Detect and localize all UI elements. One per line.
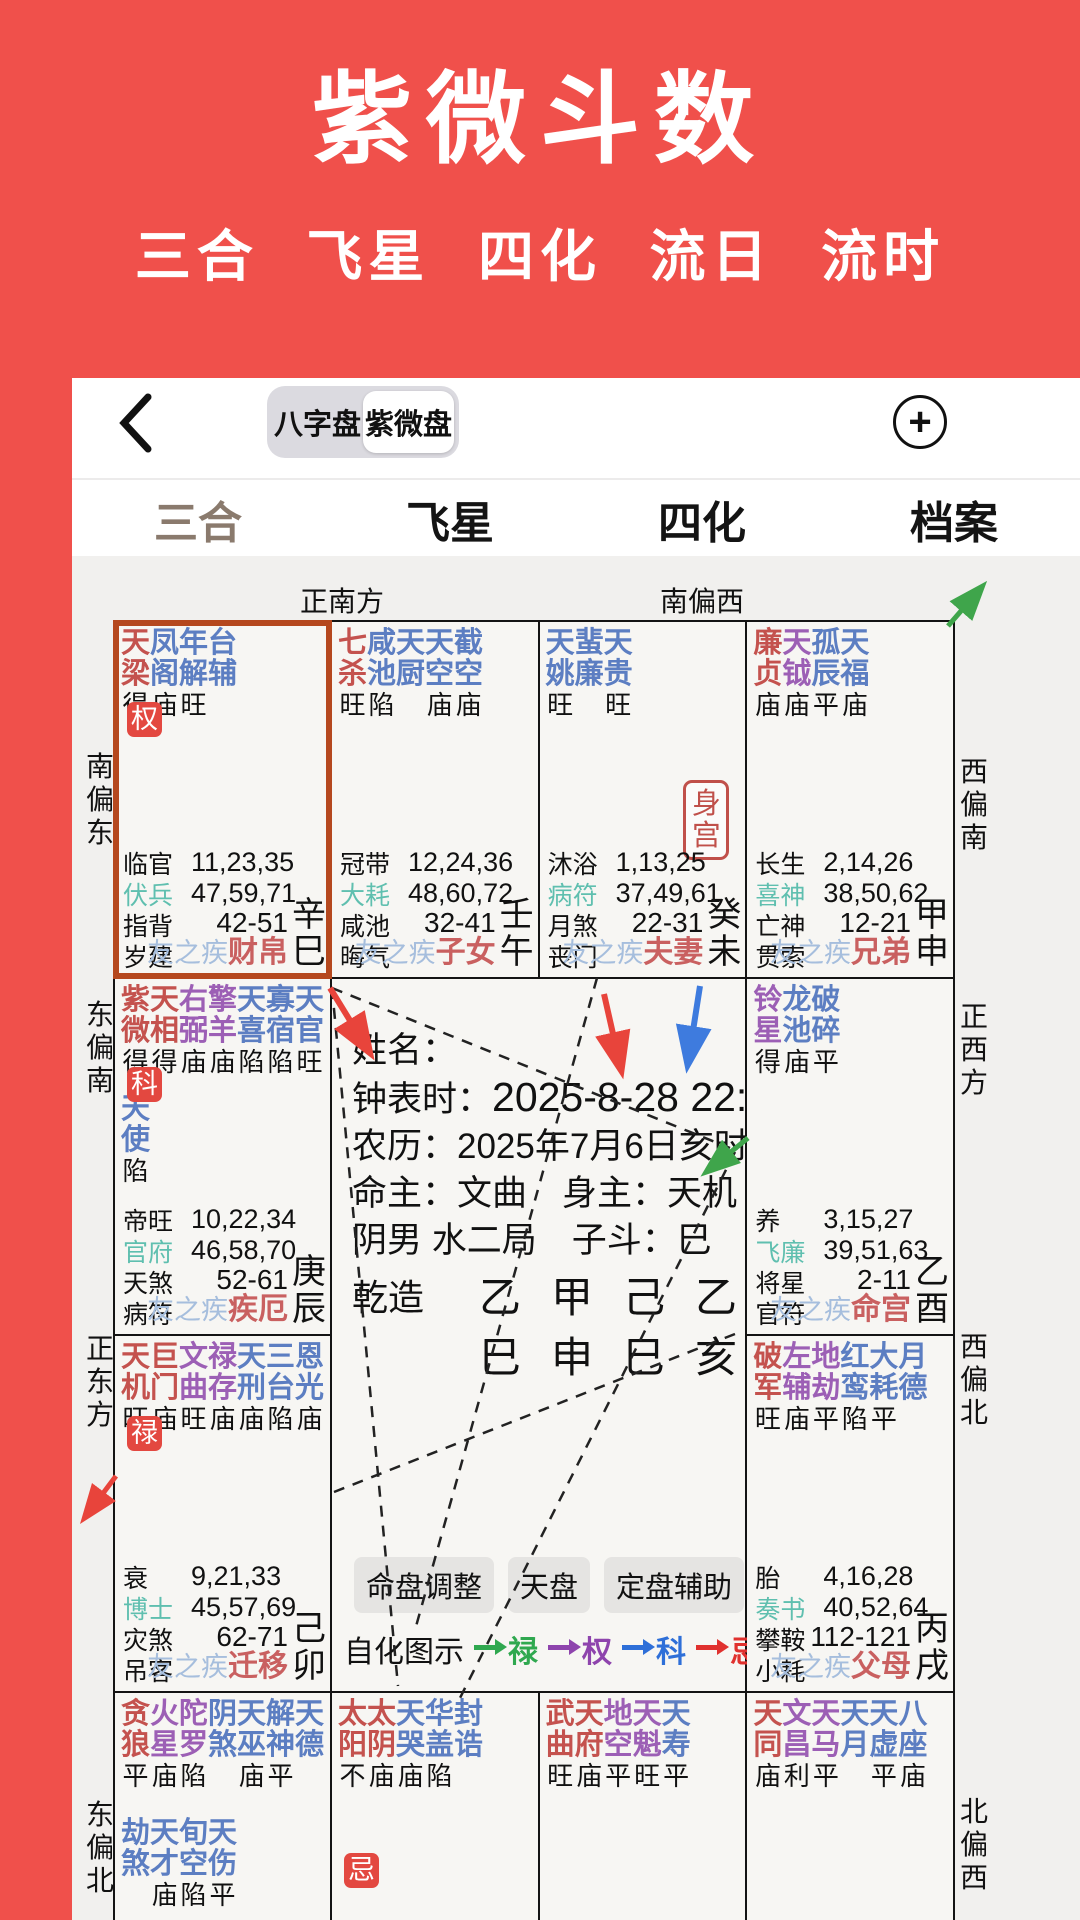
star-char: 华: [425, 1699, 454, 1730]
star-brightness: 庙: [367, 1761, 396, 1791]
star-char: 德: [295, 1730, 324, 1761]
star-char: 天: [604, 628, 633, 659]
legend-arrow-icon: [622, 1645, 644, 1650]
overlay-tag: 友之疾: [147, 938, 228, 968]
star-武曲: 武曲旺: [546, 1699, 575, 1791]
legend-arrow-icon: [474, 1645, 496, 1650]
palace-wu[interactable]: 七杀旺咸池陷天厨天空庙截空庙冠带12,24,36大耗48,60,72咸池晦气32…: [332, 622, 538, 977]
palace-name-tag: 疾厄: [228, 1293, 288, 1326]
star-char: 孤: [811, 628, 840, 659]
star-天德: 天德: [295, 1699, 324, 1791]
star-char: 才: [150, 1849, 179, 1880]
star-char: 解: [179, 659, 208, 690]
star-char: 贵: [604, 659, 633, 690]
palace-xu[interactable]: 破军旺左辅庙地劫平红鸾陷大耗平月德胎4,16,28奏书40,52,64攀鞍小耗1…: [747, 1336, 953, 1691]
star-char: 星: [753, 1016, 782, 1047]
transform-badge-忌: 忌: [344, 1853, 379, 1888]
star-brightness: 陷: [179, 1880, 208, 1910]
palace-info: 衰9,21,33博士45,57,69灾煞吊客62-71友之疾迁移: [123, 1561, 288, 1685]
center-info-panel: 姓名： 钟表时：2025-8-28 22:53 农历：2025年7月6日亥时 命…: [332, 979, 745, 1691]
star-char: 天: [546, 628, 575, 659]
limit-numbers: 45,57,69: [179, 1592, 296, 1623]
transform-badge-禄: 禄: [127, 1416, 162, 1451]
star-char: 寿: [662, 1730, 691, 1761]
star-char: 天: [575, 1699, 604, 1730]
stem-branch: 壬午: [499, 897, 535, 971]
bazi-branches-row: 巳申巳亥: [352, 1332, 793, 1384]
star-char: 诰: [454, 1730, 483, 1761]
star-火星: 火星庙: [150, 1699, 179, 1791]
page-title: 紫微斗数: [0, 38, 1080, 183]
palace-grid: 姓名： 钟表时：2025-8-28 22:53 农历：2025年7月6日亥时 命…: [113, 620, 955, 1920]
palace-info: 冠带12,24,36大耗48,60,72咸池晦气32-41友之疾子女: [340, 847, 496, 971]
star-char: 阁: [150, 659, 179, 690]
direction-label-right-4: 北偏西: [958, 1795, 990, 1894]
star-文曲: 文曲旺: [179, 1342, 208, 1434]
palace-stars: 武曲旺天府庙地空平天魁旺天寿平: [546, 1699, 740, 1791]
star-年解: 年解旺: [179, 628, 208, 720]
stem-branch: 乙酉: [914, 1254, 950, 1328]
star-char: 池: [782, 1016, 811, 1047]
star-char: 贞: [753, 659, 782, 690]
stem-branch: 庚辰: [291, 1254, 327, 1328]
star-char: 八: [898, 1699, 927, 1730]
plus-icon: +: [908, 402, 931, 442]
overlay-tag: 友之疾: [562, 938, 643, 968]
star-天伤: 天伤平: [208, 1818, 237, 1910]
star-char: 廉: [575, 659, 604, 690]
star-char: 旬: [179, 1818, 208, 1849]
star-brightness: 旺: [546, 1761, 575, 1791]
palace-tags: 友之疾夫妻: [562, 927, 703, 971]
star-char: 空: [179, 1849, 208, 1880]
palace-stars: 太阳不太阴庙天哭庙华盖陷封诰: [338, 1699, 532, 1791]
star-brightness: 陷: [840, 1404, 869, 1434]
limit-numbers: 47,59,71: [179, 878, 296, 909]
palace-you[interactable]: 铃星得龙池庙破碎平养3,15,27飞廉39,51,63将星官符2-11友之疾命宫…: [747, 979, 953, 1334]
palace-chen[interactable]: 紫微得天相得右弼庙擎羊庙天喜陷寡宿陷天官旺天使陷科帝旺10,22,34官府46,…: [115, 979, 330, 1334]
star-地空: 地空平: [604, 1699, 633, 1791]
star-char: 杀: [338, 659, 367, 690]
palace-name-tag: 子女: [436, 936, 496, 969]
star-char: 地: [811, 1342, 840, 1373]
star-天钺: 天钺庙: [782, 628, 811, 720]
app-page: 紫微斗数 三合 飞星 四化 流日 流时 八字盘 紫微盘 + 三合 飞星 四化 档…: [0, 0, 1080, 1920]
star-char: 伤: [208, 1849, 237, 1880]
star-brightness: 旺: [179, 690, 208, 720]
palace-si[interactable]: 天梁得凤阁庙年解旺台辅权临官11,23,35伏兵47,59,71指背岁建42-5…: [115, 622, 330, 977]
star-brightness: 旺: [546, 690, 575, 720]
star-brightness: 庙: [782, 1047, 811, 1077]
star-char: 凤: [150, 628, 179, 659]
star-char: 寡: [266, 985, 295, 1016]
palace-hai[interactable]: 天同庙文昌利天马平天月天虚平八座庙: [747, 1693, 953, 1920]
star-char: 天: [121, 1342, 150, 1373]
masters-row: 命主：文曲 身主：天机: [352, 1170, 793, 1217]
star-太阴: 太阴庙: [367, 1699, 396, 1791]
star-地劫: 地劫平: [811, 1342, 840, 1434]
star-char: 天: [150, 1818, 179, 1849]
palace-shen[interactable]: 廉贞庙天钺庙孤辰平天福庙长生2,14,26喜神38,50,62亡神贯索12-21…: [747, 622, 953, 977]
star-char: 天: [782, 628, 811, 659]
clock-time-row: 钟表时：2025-8-28 22:53: [352, 1074, 793, 1123]
star-brightness: 庙: [295, 1404, 324, 1434]
star-char: 星: [150, 1730, 179, 1761]
star-贪狼: 贪狼平: [121, 1699, 150, 1791]
star-char: 虚: [869, 1730, 898, 1761]
star-天相: 天相得: [150, 985, 179, 1077]
star-char: 刑: [237, 1373, 266, 1404]
star-char: 狼: [121, 1730, 150, 1761]
star-brightness: 陷: [121, 1156, 150, 1186]
direction-label-southwest: 南偏西: [660, 580, 744, 620]
limit-numbers: 2,14,26: [811, 847, 928, 878]
chevron-left-icon: [116, 441, 156, 458]
star-char: 同: [753, 1730, 782, 1761]
star-char: 空: [425, 659, 454, 690]
overlay-tag: 友之疾: [147, 1295, 228, 1325]
limit-numbers: 9,21,33: [179, 1561, 296, 1592]
limit-numbers: 46,58,70: [179, 1235, 296, 1266]
star-brightness: 庙: [208, 1047, 237, 1077]
star-brightness: 庙: [753, 1761, 782, 1791]
star-brightness: 陷: [367, 690, 396, 720]
palace-yin[interactable]: 贪狼平火星庙陀罗陷阴煞天巫庙解神平天德劫煞天才庙旬空陷天伤平: [115, 1693, 330, 1920]
star-char: 破: [811, 985, 840, 1016]
tab-sihua[interactable]: 四化: [576, 487, 828, 551]
star-char: 天: [295, 1699, 324, 1730]
star-天巫: 天巫庙: [237, 1699, 266, 1791]
star-char: 天: [869, 1699, 898, 1730]
star-char: 天: [150, 985, 179, 1016]
star-char: 梁: [121, 659, 150, 690]
star-char: 座: [898, 1730, 927, 1761]
palace-info: 胎4,16,28奏书40,52,64攀鞍小耗112-121友之疾父母: [755, 1561, 911, 1685]
star-brightness: 平: [869, 1761, 898, 1791]
star-char: 辰: [811, 659, 840, 690]
tab-feixing[interactable]: 飞星: [324, 487, 576, 551]
star-char: 三: [266, 1342, 295, 1373]
star-brightness: 平: [811, 690, 840, 720]
star-char: 罗: [179, 1730, 208, 1761]
palace-tags: 友之疾疾厄: [147, 1284, 288, 1328]
star-char: 使: [121, 1125, 150, 1156]
star-天虚: 天虚平: [869, 1699, 898, 1791]
star-天同: 天同庙: [753, 1699, 782, 1791]
star-char: 廉: [753, 628, 782, 659]
star-char: 禄: [208, 1342, 237, 1373]
limit-numbers: 38,50,62: [811, 878, 928, 909]
star-char: 龙: [782, 985, 811, 1016]
stem-branch: 甲申: [914, 897, 950, 971]
limit-numbers: 11,23,35: [179, 847, 296, 878]
star-brightness: 庙: [150, 1880, 179, 1910]
star-华盖: 华盖陷: [425, 1699, 454, 1791]
star-char: 武: [546, 1699, 575, 1730]
overlay-tag: 友之疾: [147, 1652, 228, 1682]
star-brightness: 旺: [633, 1761, 662, 1791]
star-char: 七: [338, 628, 367, 659]
app-screen: 八字盘 紫微盘 + 三合 飞星 四化 档案 正南方 南偏西 南偏东 东偏南 正东…: [72, 378, 1080, 1920]
star-char: 右: [179, 985, 208, 1016]
palace-stars: 铃星得龙池庙破碎平: [753, 985, 947, 1077]
star-char: 天: [237, 1699, 266, 1730]
star-阴煞: 阴煞: [208, 1699, 237, 1791]
star-廉贞: 廉贞庙: [753, 628, 782, 720]
star-char: 煞: [121, 1849, 150, 1880]
star-brightness: 陷: [425, 1761, 454, 1791]
star-char: 年: [179, 628, 208, 659]
star-brightness: 庙: [425, 690, 454, 720]
star-char: 台: [266, 1373, 295, 1404]
palace-tags: 友之疾财帛: [147, 927, 288, 971]
palace-wei[interactable]: 天姚旺蜚廉天贵旺身宫沐浴1,13,25病符37,49,61月煞丧门22-31友之…: [540, 622, 746, 977]
star-天使: 天使陷: [121, 1094, 150, 1186]
palace-name-tag: 夫妻: [643, 936, 703, 969]
direction-label-left-1: 南偏东: [84, 750, 116, 849]
direction-label-south: 正南方: [300, 580, 384, 620]
star-brightness: 旺: [338, 690, 367, 720]
palace-name-tag: 财帛: [228, 936, 288, 969]
star-brightness: 庙: [179, 1047, 208, 1077]
star-brightness: 陷: [237, 1047, 266, 1077]
star-char: 鸾: [840, 1373, 869, 1404]
star-char: 相: [150, 1016, 179, 1047]
overlay-tag: 友之疾: [770, 938, 851, 968]
direction-label-left-3: 正东方: [84, 1332, 116, 1431]
star-天马: 天马平: [811, 1699, 840, 1791]
stem-branch: 辛巳: [291, 897, 327, 971]
natal-info: 姓名： 钟表时：2025-8-28 22:53 农历：2025年7月6日亥时 命…: [352, 1027, 793, 1384]
star-char: 蜚: [575, 628, 604, 659]
palace-chou[interactable]: 太阳不太阴庙天哭庙华盖陷封诰忌: [332, 1693, 538, 1920]
legend-item-禄: 禄: [508, 1627, 538, 1671]
star-char: 天: [662, 1699, 691, 1730]
lunar-date-row: 农历：2025年7月6日亥时: [352, 1123, 793, 1170]
star-紫微: 紫微得: [121, 985, 150, 1077]
direction-label-right-2: 正西方: [958, 1000, 990, 1099]
direction-label-right-1: 西偏南: [958, 755, 990, 854]
back-button[interactable]: [116, 392, 156, 454]
star-char: 碎: [811, 1016, 840, 1047]
palace-stars: 破军旺左辅庙地劫平红鸾陷大耗平月德: [753, 1342, 947, 1434]
star-太阳: 太阳不: [338, 1699, 367, 1791]
limit-numbers: 1,13,25: [604, 847, 721, 878]
star-char: 辅: [208, 659, 237, 690]
star-char: 马: [811, 1730, 840, 1761]
star-brightness: 庙: [237, 1404, 266, 1434]
star-char: 羊: [208, 1016, 237, 1047]
navbar: 八字盘 紫微盘 +: [72, 378, 1080, 478]
overlay-tag: 友之疾: [355, 938, 436, 968]
transform-badge-科: 科: [127, 1067, 162, 1102]
star-char: 厨: [396, 659, 425, 690]
star-char: 喜: [237, 1016, 266, 1047]
self-transform-legend: 自化图示 禄权科忌: [344, 1627, 760, 1671]
stem-branch: 己卯: [291, 1611, 327, 1685]
limit-numbers: 37,49,61: [604, 878, 721, 909]
star-char: 辅: [782, 1373, 811, 1404]
star-char: 文: [179, 1342, 208, 1373]
bazi-stems-row: 乾造 乙甲己乙: [352, 1272, 793, 1324]
star-三台: 三台陷: [266, 1342, 295, 1434]
chart-action-buttons: 命盘调整 天盘 定盘辅助: [354, 1557, 744, 1613]
segment-ziwei[interactable]: 紫微盘: [363, 391, 454, 453]
star-char: 光: [295, 1373, 324, 1404]
star-char: 贪: [121, 1699, 150, 1730]
palace-zi[interactable]: 武曲旺天府庙地空平天魁旺天寿平: [540, 1693, 746, 1920]
star-char: 姚: [546, 659, 575, 690]
star-brightness: 庙: [150, 1761, 179, 1791]
palace-tags: 友之疾子女: [355, 927, 496, 971]
star-char: 曲: [546, 1730, 575, 1761]
limit-numbers: 10,22,34: [179, 1204, 296, 1235]
star-brightness: 得: [753, 1047, 782, 1077]
star-char: 天: [237, 1342, 266, 1373]
star-铃星: 铃星得: [753, 985, 782, 1077]
gender-bureau-row: 阴男 水二局 子斗：巳: [352, 1217, 793, 1264]
star-brightness: 平: [811, 1761, 840, 1791]
tab-sanhe[interactable]: 三合: [72, 487, 324, 551]
star-左辅: 左辅庙: [782, 1342, 811, 1434]
star-char: 天: [237, 985, 266, 1016]
star-brightness: 庙: [575, 1761, 604, 1791]
palace-name-tag: 父母: [851, 1650, 911, 1683]
palace-stars: 天姚旺蜚廉天贵旺: [546, 628, 740, 720]
star-brightness: 平: [266, 1761, 295, 1791]
palace-name-tag: 迁移: [228, 1650, 288, 1683]
star-右弼: 右弼庙: [179, 985, 208, 1077]
star-char: 空: [604, 1730, 633, 1761]
star-破碎: 破碎平: [811, 985, 840, 1077]
stem-branch: 丙戌: [914, 1611, 950, 1685]
star-天空: 天空庙: [425, 628, 454, 720]
limit-numbers: 12,24,36: [396, 847, 513, 878]
star-char: 曲: [179, 1373, 208, 1404]
star-char: 耗: [869, 1373, 898, 1404]
star-char: 天: [396, 628, 425, 659]
star-char: 空: [454, 659, 483, 690]
star-天姚: 天姚旺: [546, 628, 575, 720]
star-char: 天: [753, 1699, 782, 1730]
star-char: 天: [633, 1699, 662, 1730]
palace-tags: 友之疾兄弟: [770, 927, 911, 971]
star-brightness: 庙: [208, 1404, 237, 1434]
star-char: 天: [811, 1699, 840, 1730]
star-brightness: 旺: [295, 1047, 324, 1077]
name-row: 姓名：: [352, 1027, 793, 1074]
star-brightness: 旺: [753, 1404, 782, 1434]
star-brightness: 庙: [782, 1404, 811, 1434]
sky-chart-button[interactable]: 天盘: [508, 1557, 590, 1613]
star-char: 府: [575, 1730, 604, 1761]
star-char: 昌: [782, 1730, 811, 1761]
legend-arrow-icon: [696, 1645, 718, 1650]
legend-item-权: 权: [582, 1627, 612, 1671]
star-char: 存: [208, 1373, 237, 1404]
star-char: 钺: [782, 659, 811, 690]
star-char: 天: [840, 628, 869, 659]
palace-info: 养3,15,27飞廉39,51,63将星官符2-11友之疾命宫: [755, 1204, 911, 1328]
limit-numbers: 39,51,63: [811, 1235, 928, 1266]
palace-stars: 廉贞庙天钺庙孤辰平天福庙: [753, 628, 947, 720]
star-char: 地: [604, 1699, 633, 1730]
star-brightness: 平: [811, 1404, 840, 1434]
star-brightness: 庙: [782, 690, 811, 720]
star-char: 阳: [338, 1730, 367, 1761]
fix-chart-helper-button[interactable]: 定盘辅助: [604, 1557, 744, 1613]
overlay-tag: 友之疾: [770, 1652, 851, 1682]
palace-tags: 友之疾父母: [770, 1641, 911, 1685]
star-char: 德: [898, 1373, 927, 1404]
star-char: 巫: [237, 1730, 266, 1761]
star-char: 机: [121, 1373, 150, 1404]
limit-numbers: 4,16,28: [811, 1561, 928, 1592]
star-brightness: 庙: [237, 1761, 266, 1791]
star-char: 解: [266, 1699, 295, 1730]
star-孤辰: 孤辰平: [811, 628, 840, 720]
star-char: 煞: [208, 1730, 237, 1761]
star-char: 台: [208, 628, 237, 659]
palace-stars: 七杀旺咸池陷天厨天空庙截空庙: [338, 628, 532, 720]
star-封诰: 封诰: [454, 1699, 483, 1791]
palace-info: 临官11,23,35伏兵47,59,71指背岁建42-51友之疾财帛: [123, 847, 288, 971]
star-char: 左: [782, 1342, 811, 1373]
palace-tags: 友之疾命宫: [770, 1284, 911, 1328]
star-char: 官: [295, 1016, 324, 1047]
star-char: 劫: [121, 1818, 150, 1849]
star-char: 天: [396, 1699, 425, 1730]
star-八座: 八座庙: [898, 1699, 927, 1791]
star-brightness: 旺: [604, 690, 633, 720]
palace-mao[interactable]: 天机旺巨门庙文曲旺禄存庙天刑庙三台陷恩光庙禄衰9,21,33博士45,57,69…: [115, 1336, 330, 1691]
star-brightness: 平: [121, 1761, 150, 1791]
star-char: 陀: [179, 1699, 208, 1730]
tab-bar: 三合 飞星 四化 档案: [72, 478, 1080, 558]
adjust-chart-button[interactable]: 命盘调整: [354, 1557, 494, 1613]
star-char: 月: [898, 1342, 927, 1373]
star-brightness: 庙: [753, 690, 782, 720]
star-char: 巨: [150, 1342, 179, 1373]
star-月德: 月德: [898, 1342, 927, 1434]
star-char: 池: [367, 659, 396, 690]
star-char: 封: [454, 1699, 483, 1730]
add-button[interactable]: +: [893, 395, 947, 449]
star-brightness: 平: [208, 1880, 237, 1910]
star-天魁: 天魁旺: [633, 1699, 662, 1791]
palace-info: 沐浴1,13,25病符37,49,61月煞丧门22-31友之疾夫妻: [548, 847, 704, 971]
star-劫煞: 劫煞: [121, 1818, 150, 1910]
star-char: 月: [840, 1730, 869, 1761]
star-大耗: 大耗平: [869, 1342, 898, 1434]
star-char: 宿: [266, 1016, 295, 1047]
star-brightness: 平: [811, 1047, 840, 1077]
star-char: 截: [454, 628, 483, 659]
tab-dangan[interactable]: 档案: [828, 487, 1080, 551]
star-char: 盖: [425, 1730, 454, 1761]
star-天刑: 天刑庙: [237, 1342, 266, 1434]
limit-numbers: 48,60,72: [396, 878, 513, 909]
stem-branch: 癸未: [706, 897, 742, 971]
palace-stars: 紫微得天相得右弼庙擎羊庙天喜陷寡宿陷天官旺: [121, 985, 324, 1077]
segment-bazi[interactable]: 八字盘: [272, 391, 363, 453]
star-brightness: 不: [338, 1761, 367, 1791]
direction-label-right-3: 西偏北: [958, 1330, 990, 1429]
star-破军: 破军旺: [753, 1342, 782, 1434]
star-char: 军: [753, 1373, 782, 1404]
direction-label-left-4: 东偏北: [84, 1798, 116, 1897]
star-brightness: 庙: [840, 690, 869, 720]
